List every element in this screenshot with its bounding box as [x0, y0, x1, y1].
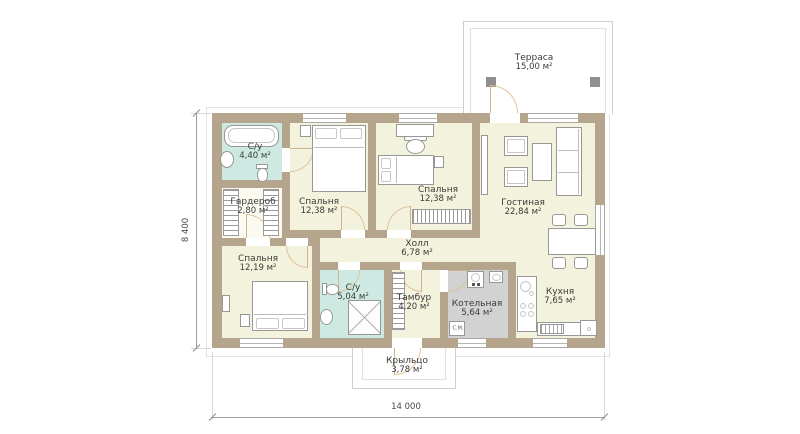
window [595, 205, 605, 255]
window [458, 338, 486, 348]
door-leaf-icon [410, 206, 411, 230]
window [303, 113, 346, 123]
room-area: 12,38 м² [418, 195, 458, 205]
room-label-bath-1: С/у 4,40 м² [239, 142, 270, 162]
nightstand-icon [434, 156, 444, 168]
wall [308, 238, 320, 246]
armchair-seat [507, 139, 525, 153]
room-label-tambour: Тамбур 4,20 м² [397, 293, 431, 313]
room-label-bedroom-2: Спальня 12,38 м² [418, 185, 458, 205]
wall [440, 262, 448, 270]
dining-chair-icon [574, 257, 588, 269]
boiler-knob [472, 283, 475, 286]
wall [222, 238, 246, 246]
pillow-icon [340, 128, 362, 139]
door-leaf-icon [341, 206, 342, 230]
sink-icon [320, 309, 333, 325]
blanket-line [396, 157, 397, 183]
dimension-extension-line [604, 352, 605, 420]
bed-icon [378, 155, 434, 185]
dining-chair-icon [574, 214, 588, 226]
dimension-height-label: 8 400 [181, 218, 191, 242]
room-area: 4,20 м² [397, 303, 431, 313]
washing-machine-label: С.М. [453, 327, 464, 332]
bed-icon [252, 281, 308, 331]
room-label-kitchen: Кухня 7,65 м² [544, 287, 575, 307]
entrance-door-opening [392, 338, 422, 348]
coffee-table-icon [532, 143, 552, 181]
armchair-icon [504, 167, 528, 187]
room-area: 7,65 м² [544, 297, 575, 307]
pillow-icon [256, 318, 279, 329]
bed-icon [312, 125, 366, 192]
room-label-terrace: Терраса 15,00 м² [515, 53, 553, 73]
desk-chair-icon [406, 139, 425, 154]
sink-bowl [492, 274, 501, 281]
wall [290, 230, 341, 238]
room-area: 5,04 м² [337, 293, 368, 303]
room-area: 6,78 м² [401, 249, 432, 259]
door-opening [440, 270, 448, 292]
fridge-dot [587, 327, 591, 331]
dining-chair-icon [552, 257, 566, 269]
bathtub-rim [228, 128, 275, 143]
wall [368, 123, 376, 230]
pillow-icon [315, 128, 337, 139]
wall [448, 262, 516, 270]
room-label-hall: Холл 6,78 м² [401, 239, 432, 259]
sink-icon [220, 151, 234, 168]
door-opening [286, 238, 308, 246]
door-leaf-icon [290, 148, 314, 149]
wall [270, 238, 286, 246]
wall [365, 230, 387, 238]
shower-icon [348, 300, 381, 335]
room-label-living: Гостиная 22,84 м² [501, 198, 545, 218]
door-opening [341, 230, 365, 238]
nightstand-icon [300, 125, 311, 137]
wall [384, 262, 392, 338]
pillow-icon [381, 158, 391, 169]
window [533, 338, 567, 348]
kitchen-sink-small-bowl [529, 291, 534, 296]
pillow-icon [381, 171, 391, 182]
door-leaf-icon [421, 270, 422, 292]
fridge-icon [580, 320, 597, 336]
wall [312, 246, 320, 338]
room-label-bedroom-3: Спальня 12,19 м² [238, 254, 278, 274]
nightstand-icon [240, 314, 250, 327]
room-area: 22,84 м² [501, 208, 545, 218]
door-opening [246, 238, 270, 246]
stove-burner-icon [528, 311, 534, 317]
terrace-door-opening [490, 113, 520, 123]
room-area: 15,00 м² [515, 63, 553, 73]
wall [282, 123, 290, 246]
room-label-bath-2: С/у 5,04 м² [337, 283, 368, 303]
terrace-post-icon [590, 77, 600, 87]
door-leaf-icon [307, 246, 308, 268]
oven-icon [540, 324, 564, 334]
dining-chair-icon [552, 214, 566, 226]
wall [472, 123, 480, 230]
room-label-bedroom-1: Спальня 12,38 м² [299, 197, 339, 217]
window [399, 113, 437, 123]
door-opening [282, 148, 290, 172]
boiler-knob [477, 283, 480, 286]
tv-console-icon [481, 135, 488, 195]
door-opening [338, 262, 360, 270]
room-area: 4,40 м² [239, 152, 270, 162]
room-area: 3,78 м² [386, 366, 428, 376]
blanket-line [314, 147, 364, 148]
room-area: 12,19 м² [238, 264, 278, 274]
dimension-extension-line [212, 352, 213, 420]
dining-table-icon [548, 228, 596, 255]
room-label-porch: Крыльцо 3,78 м² [386, 356, 428, 376]
wall [222, 180, 282, 188]
pillow-icon [282, 318, 305, 329]
stove-burner-icon [520, 303, 526, 309]
dimension-line-horizontal [212, 417, 605, 418]
wardrobe-cabinet-icon [412, 209, 471, 224]
room-area: 2,80 м² [230, 207, 275, 217]
room-area: 12,38 м² [299, 207, 339, 217]
dimension-line-vertical [196, 113, 197, 348]
door-leaf-icon [490, 85, 491, 113]
window [528, 113, 578, 123]
armchair-icon [504, 136, 528, 156]
wall [411, 230, 480, 238]
kitchen-counter-icon [517, 276, 537, 332]
room-label-wardrobe: Гардероб 2,80 м² [230, 197, 275, 217]
door-opening [400, 262, 422, 270]
floor-plan: С.М. Терраса 15,00 м² С/у 4,40 м² Гардер… [0, 0, 800, 434]
dresser-icon [222, 295, 230, 312]
armchair-seat [507, 170, 525, 184]
dimension-width-label: 14 000 [391, 402, 421, 412]
boiler-icon [467, 271, 484, 288]
wall [440, 292, 448, 338]
sofa-icon [556, 127, 582, 196]
window [240, 338, 283, 348]
wall [312, 262, 338, 270]
door-leaf-icon [246, 214, 247, 238]
wall [508, 262, 516, 338]
stove-burner-icon [528, 303, 534, 309]
utility-sink-icon [489, 271, 503, 283]
blanket-line [254, 314, 306, 315]
room-label-boiler: Котельная 5,64 м² [452, 299, 503, 319]
room-area: 5,64 м² [452, 309, 503, 319]
sofa-back-line [578, 129, 579, 194]
toilet-icon [257, 168, 268, 182]
wall [392, 262, 400, 270]
door-opening [387, 230, 411, 238]
stove-burner-icon [520, 311, 526, 317]
sofa-cushion-line [558, 172, 578, 173]
washing-machine-icon: С.М. [449, 321, 465, 336]
boiler-dial [471, 273, 480, 282]
sofa-cushion-line [558, 150, 578, 151]
